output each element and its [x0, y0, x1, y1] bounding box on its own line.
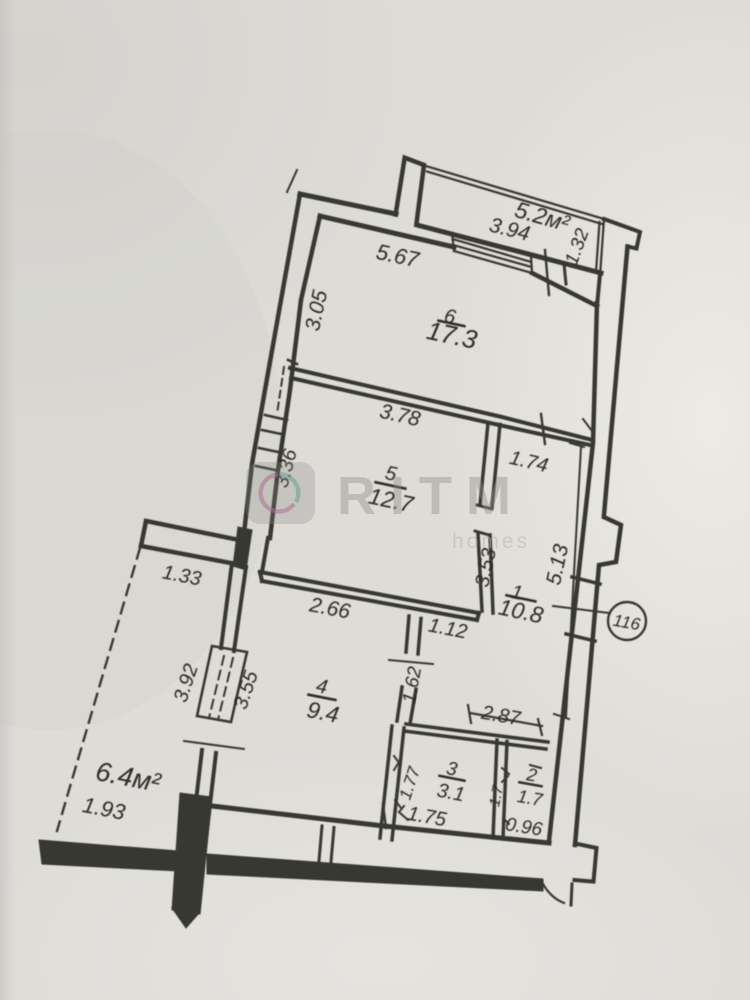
- svg-text:homes: homes: [452, 530, 530, 553]
- svg-text:RITM: RITM: [337, 466, 525, 526]
